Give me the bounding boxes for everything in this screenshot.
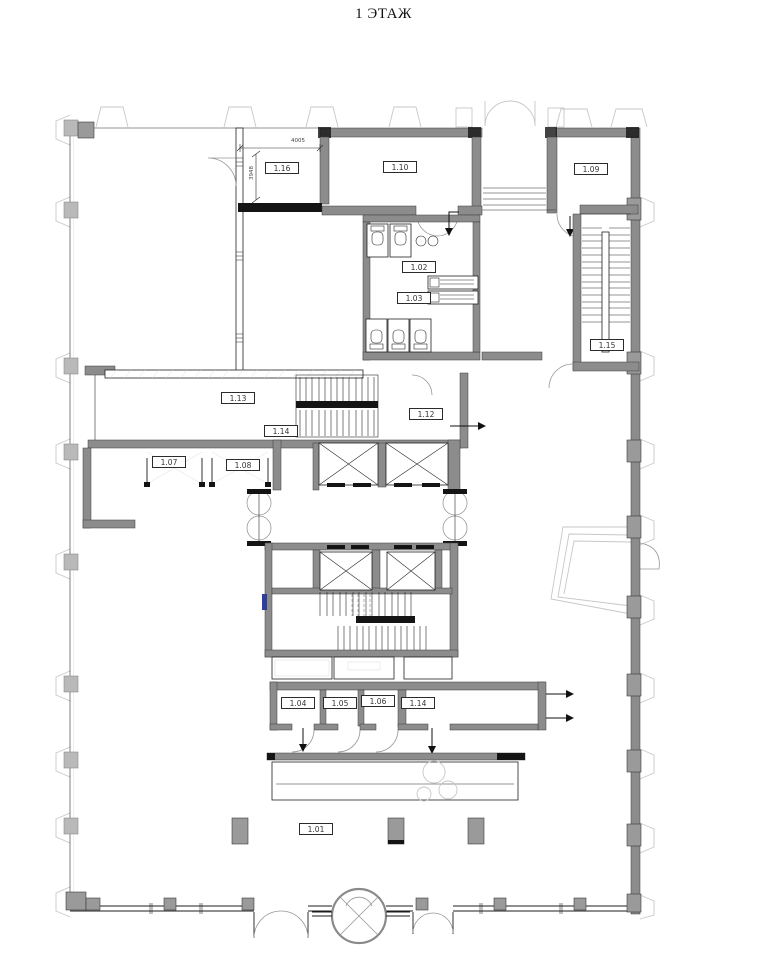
central-core xyxy=(262,543,458,657)
room-label-1-09: 1.09 xyxy=(574,163,608,175)
room-label-1-07: 1.07 xyxy=(152,456,186,468)
room-label-1-14: 1.14 xyxy=(264,425,298,437)
blue-marker xyxy=(262,594,267,610)
reception-desk xyxy=(267,753,525,801)
room-label-1-04: 1.04 xyxy=(281,697,315,709)
dimension-horizontal: 4005 xyxy=(290,138,306,144)
room-label-1-10: 1.10 xyxy=(383,161,417,173)
room-label-1-06: 1.06 xyxy=(361,695,395,707)
room-label-1-02: 1.02 xyxy=(402,261,436,273)
room-label-1-15: 1.15 xyxy=(590,339,624,351)
entrance-vestibule xyxy=(472,137,557,213)
room-label-1-14b: 1.14 xyxy=(401,697,435,709)
floor-plan-drawing xyxy=(0,0,767,966)
room-label-1-12: 1.12 xyxy=(409,408,443,420)
floor-plan-page: 1 ЭТАЖ xyxy=(0,0,767,966)
bottom-entrance xyxy=(254,889,453,943)
dimension-vertical: 3948 xyxy=(249,165,255,181)
wc-block xyxy=(363,212,542,360)
stairwell-115 xyxy=(549,214,639,388)
room-label-1-13: 1.13 xyxy=(221,392,255,404)
room-label-1-05: 1.05 xyxy=(323,697,357,709)
room-label-1-03: 1.03 xyxy=(397,292,431,304)
room-label-1-16: 1.16 xyxy=(265,162,299,174)
room-label-1-01: 1.01 xyxy=(299,823,333,835)
room-label-1-08: 1.08 xyxy=(226,459,260,471)
